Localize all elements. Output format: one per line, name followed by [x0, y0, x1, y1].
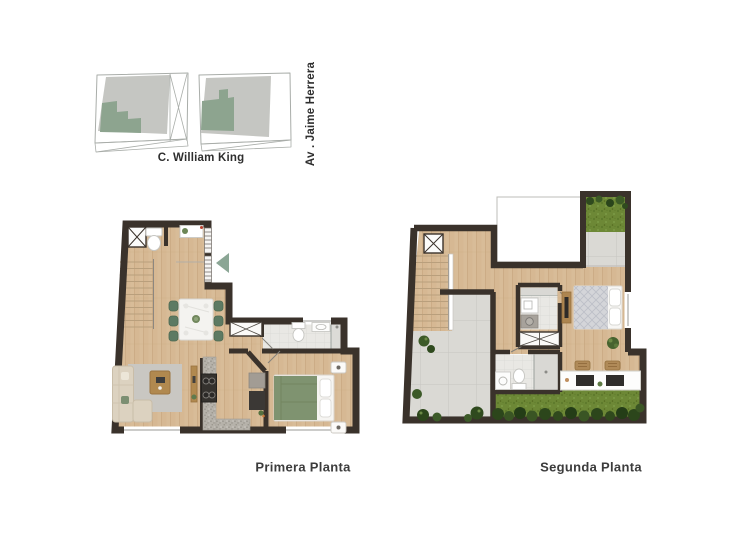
- bathroom: [496, 355, 558, 390]
- plan-label-primera: Primera Planta: [255, 460, 350, 475]
- duvet: [574, 286, 608, 329]
- plant-icon: [182, 228, 188, 234]
- street-label-bottom: C. William King: [158, 152, 245, 164]
- red-accent-dot: [200, 226, 203, 229]
- window: [625, 292, 632, 328]
- coffee-table: [150, 371, 170, 394]
- bathroom: [521, 288, 558, 330]
- sink: [496, 372, 511, 390]
- green-pillow: [121, 396, 129, 404]
- floorplan-sheet: C. William King Av . Jaime Herrera Prime…: [0, 0, 730, 548]
- bed: [274, 375, 334, 421]
- toilet-icon: [514, 369, 525, 383]
- entrance-arrow-icon: [216, 253, 229, 273]
- void-opening: [497, 197, 583, 262]
- tv-icon: [565, 297, 569, 318]
- closet-icon: [520, 332, 560, 346]
- sink: [312, 323, 330, 332]
- bed: [574, 286, 622, 329]
- plant-icon: [258, 410, 263, 415]
- duvet: [274, 376, 317, 420]
- pillow: [610, 308, 621, 325]
- second-floor-plan: [406, 194, 645, 422]
- fridge: [249, 373, 265, 388]
- toilet-icon: [293, 329, 304, 342]
- shower-drain-icon: [336, 326, 339, 329]
- planter-tile: [585, 232, 628, 267]
- plant-icon: [192, 395, 197, 400]
- grill-icon: [576, 375, 594, 386]
- toilet-icon: [146, 228, 162, 251]
- console-shelf: [191, 366, 197, 402]
- bar-counter: [561, 371, 641, 390]
- first-floor-plan: [113, 224, 357, 434]
- closet-icon: [230, 322, 262, 336]
- elevator-icon: [424, 234, 443, 253]
- dining-table: [179, 299, 213, 340]
- shower-drain-icon: [545, 371, 548, 374]
- plant-icon: [598, 382, 603, 387]
- site-map-block-1: [95, 73, 188, 152]
- pillow: [610, 289, 621, 306]
- grill-icon: [606, 375, 624, 386]
- sink: [521, 298, 538, 313]
- pillow: [320, 399, 331, 417]
- console-shelf: [562, 292, 571, 323]
- street-label-right: Av . Jaime Herrera: [305, 62, 317, 166]
- stove-icon: [202, 374, 217, 402]
- elevator-icon: [128, 227, 146, 247]
- plant-icon: [607, 337, 619, 349]
- pillow: [320, 379, 331, 397]
- plan-label-segunda: Segunda Planta: [540, 460, 642, 475]
- sink: [180, 226, 203, 238]
- site-map-block-2: [199, 73, 291, 151]
- kitchen-cabinet: [249, 391, 265, 410]
